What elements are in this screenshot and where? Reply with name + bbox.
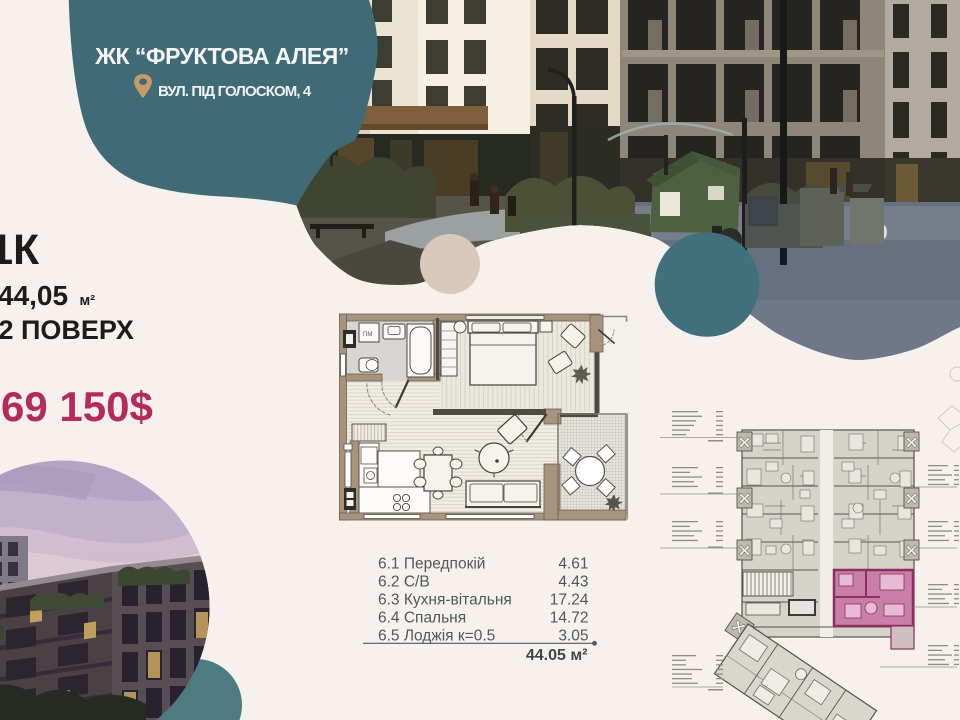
svg-text:3.05: 3.05 [558,628,588,645]
svg-text:ВУЛ. ПІД ГОЛОСКОМ, 4: ВУЛ. ПІД ГОЛОСКОМ, 4 [158,83,312,100]
svg-text:1К: 1К [0,227,39,274]
svg-text:ПМ: ПМ [363,332,372,338]
svg-text:6.4 Спальня: 6.4 Спальня [378,610,466,627]
svg-text:44.05 м²: 44.05 м² [526,647,588,664]
svg-text:м²: м² [80,293,96,309]
svg-text:6.2 С/В: 6.2 С/В [378,574,430,591]
svg-text:44,05: 44,05 [0,280,68,311]
svg-text:2 ПОВЕРХ: 2 ПОВЕРХ [0,315,134,345]
svg-text:69 150$: 69 150$ [1,383,153,430]
svg-text:6.1 Передпокій: 6.1 Передпокій [378,556,485,573]
svg-text:14.72: 14.72 [550,610,589,627]
svg-text:6.5 Лоджія к=0.5: 6.5 Лоджія к=0.5 [378,628,495,645]
svg-text:17.24: 17.24 [550,592,589,609]
svg-text:4.43: 4.43 [558,574,588,591]
svg-text:4.61: 4.61 [558,556,588,573]
svg-text:ЖК “ФРУКТОВА АЛЕЯ”: ЖК “ФРУКТОВА АЛЕЯ” [94,43,349,69]
svg-text:6.3 Кухня-вітальня: 6.3 Кухня-вітальня [378,592,512,609]
